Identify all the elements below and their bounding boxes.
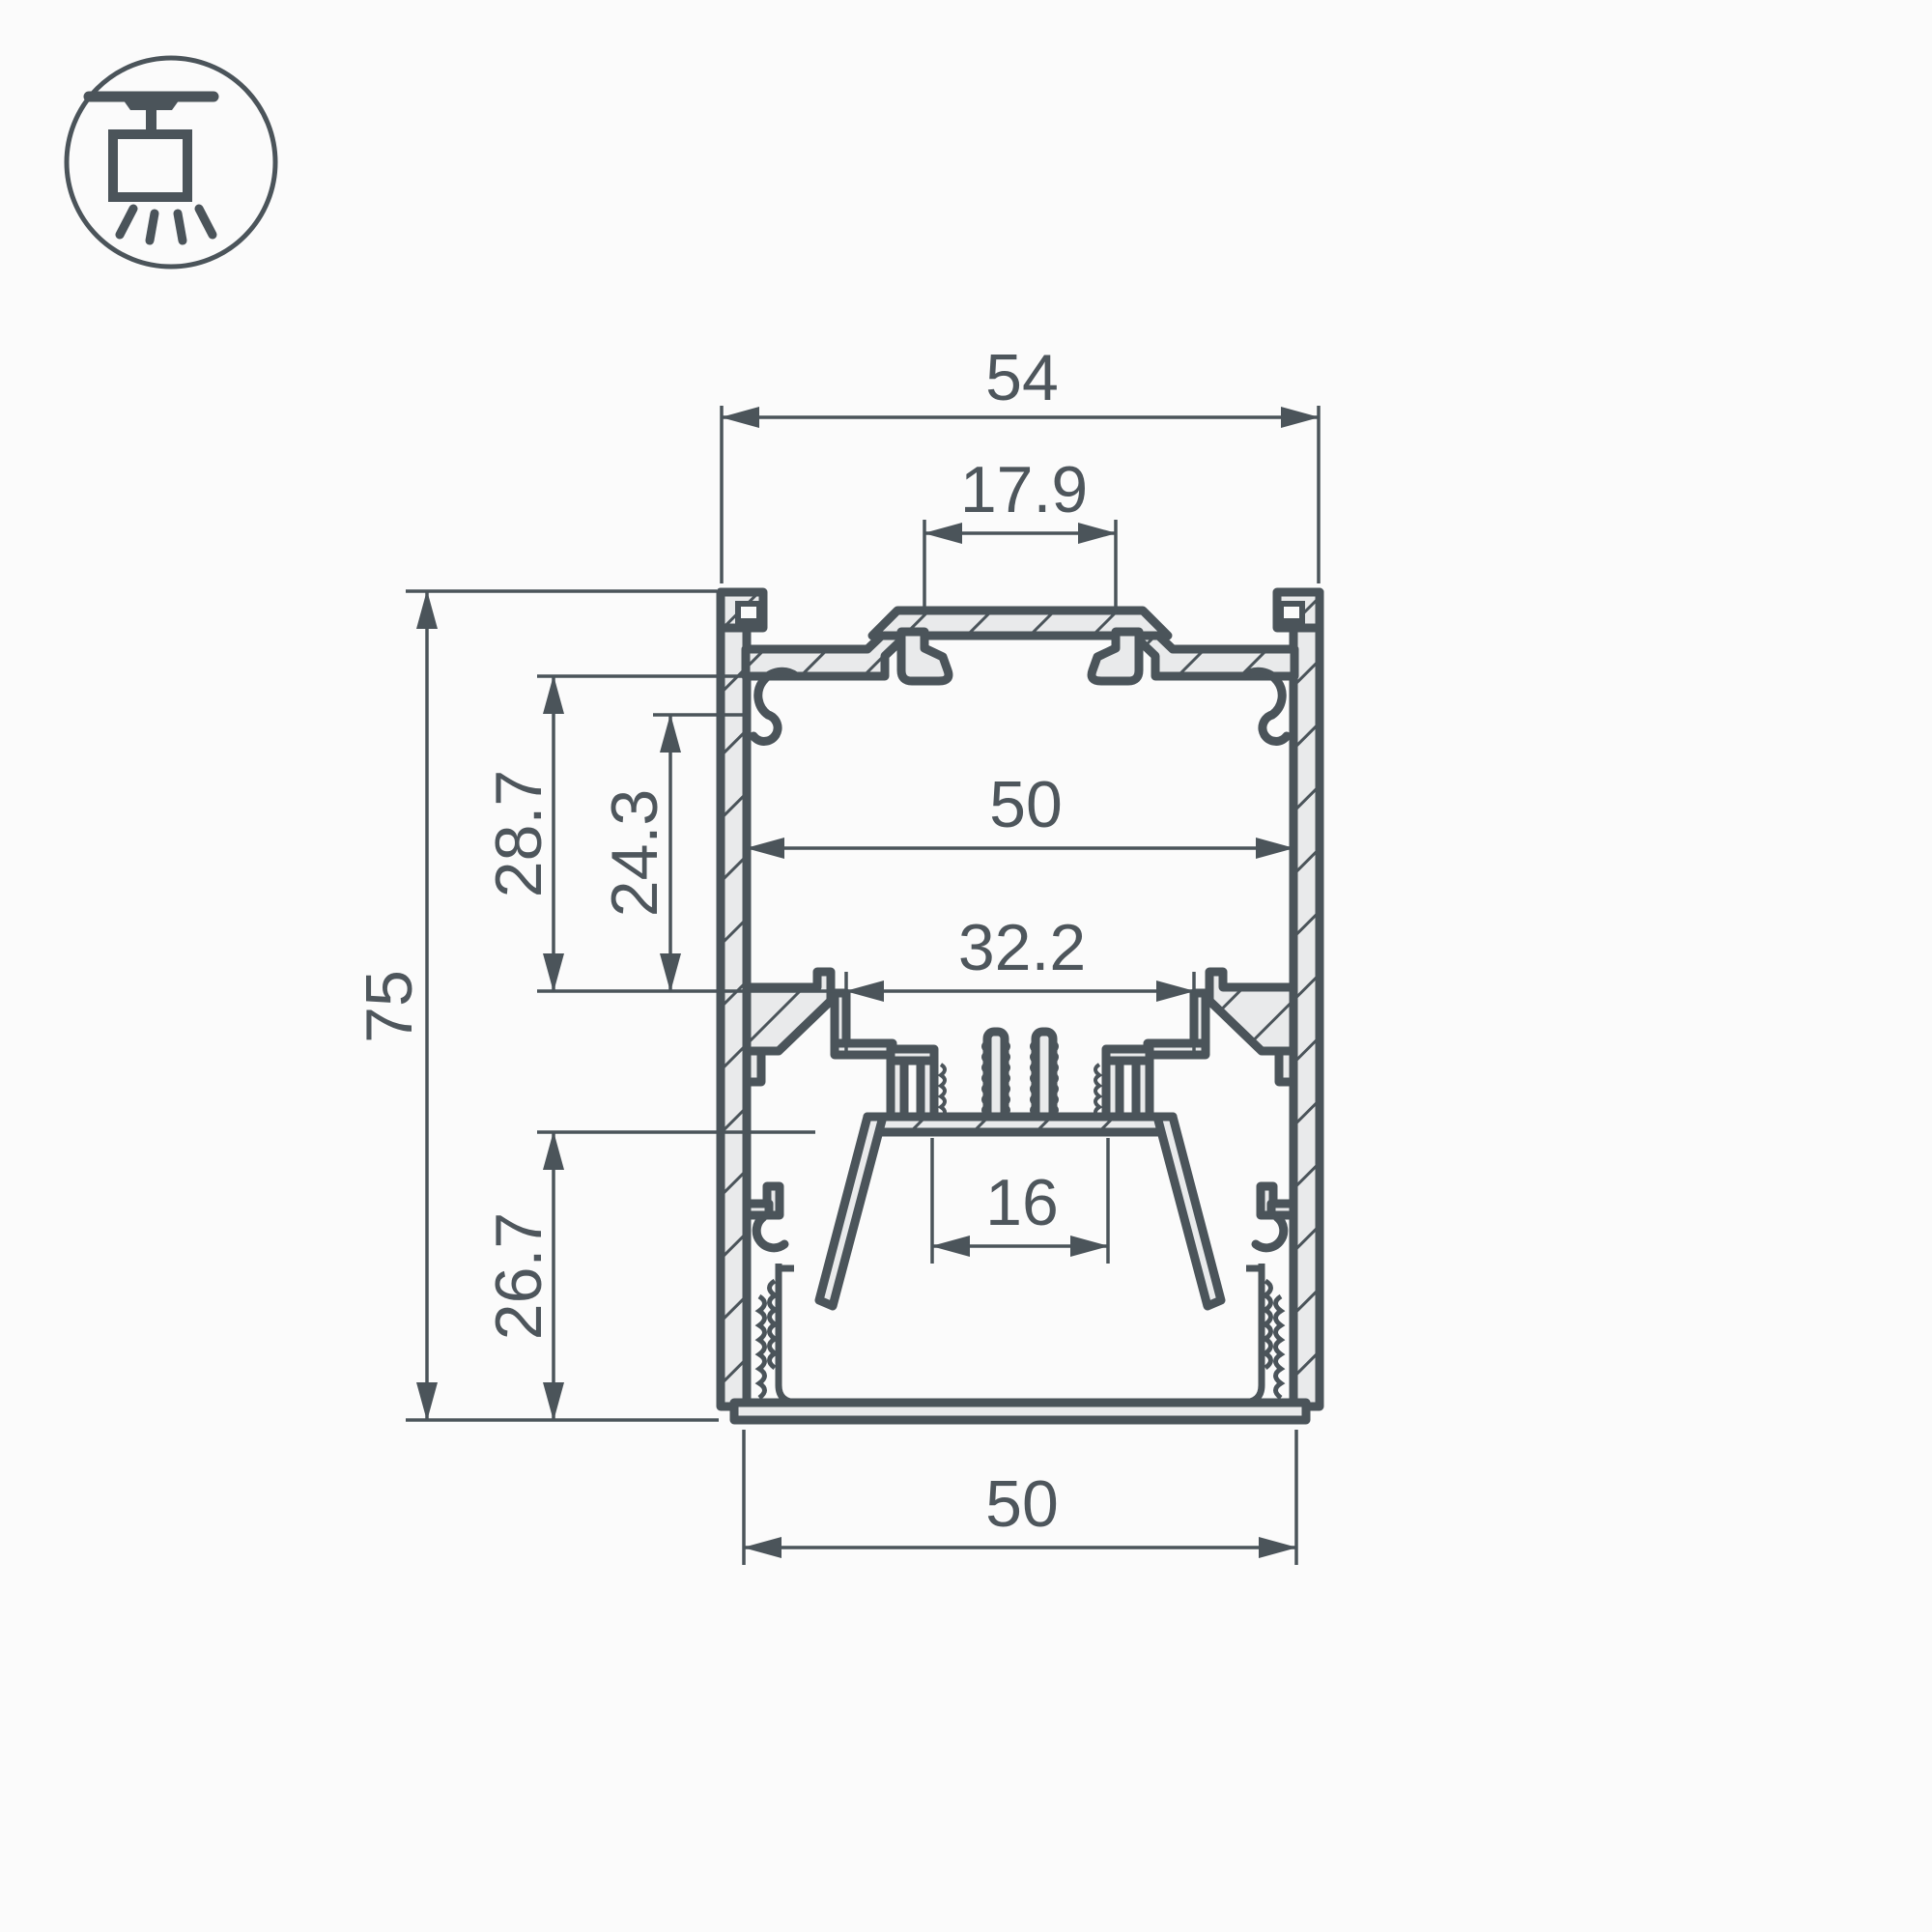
dim-upper-inner-depth-label: 24.3 (598, 789, 671, 917)
screw-boss-top-right (1244, 671, 1287, 741)
drawing-canvas: 54 17.9 50 32.2 16 50 (0, 0, 1932, 1932)
dim-cavity-width: 32.2 (846, 911, 1194, 1059)
dim-slot-width-label: 17.9 (960, 453, 1088, 526)
dim-led-seat-width-label: 16 (985, 1166, 1059, 1239)
dimensions: 54 17.9 50 32.2 16 50 (353, 341, 1319, 1565)
left-head-channel (738, 604, 759, 621)
dim-lower-depth-label: 26.7 (482, 1212, 555, 1340)
dim-led-seat-width: 16 (932, 1138, 1108, 1264)
screw-boss-top-left (753, 671, 796, 741)
wall-serration-right (1276, 1296, 1282, 1398)
dim-upper-depth-label: 28.7 (482, 770, 555, 897)
dim-cavity-width-label: 32.2 (958, 911, 1086, 984)
screw-boss-bottom-left (747, 1186, 784, 1248)
right-head-channel (1281, 604, 1302, 621)
bracket-tab-left (747, 1051, 761, 1082)
dim-overall-width-label: 54 (985, 341, 1059, 414)
dim-inner-width-label: 50 (989, 768, 1063, 841)
dim-inner-width: 50 (747, 768, 1293, 848)
dim-bottom-width-label: 50 (985, 1467, 1059, 1541)
shelf-bracket-left (747, 972, 831, 1051)
dim-bottom-width: 50 (744, 1430, 1296, 1565)
wall-serration-left (759, 1296, 765, 1398)
bracket-tab-right (1279, 1051, 1293, 1082)
screw-boss-bottom-right (1256, 1186, 1293, 1248)
shelf-bracket-right (1209, 972, 1293, 1051)
light-rays-icon (120, 209, 213, 241)
led-heatsink-tray (819, 993, 1221, 1306)
profile-technical-drawing: 54 17.9 50 32.2 16 50 (0, 0, 1932, 1932)
dim-overall-height-label: 75 (353, 970, 426, 1043)
diffuser-bottom (734, 1403, 1306, 1420)
ceiling-suspended-luminaire-icon (67, 58, 275, 267)
profile-cross-section (721, 592, 1320, 1420)
dim-slot-width: 17.9 (924, 453, 1116, 614)
